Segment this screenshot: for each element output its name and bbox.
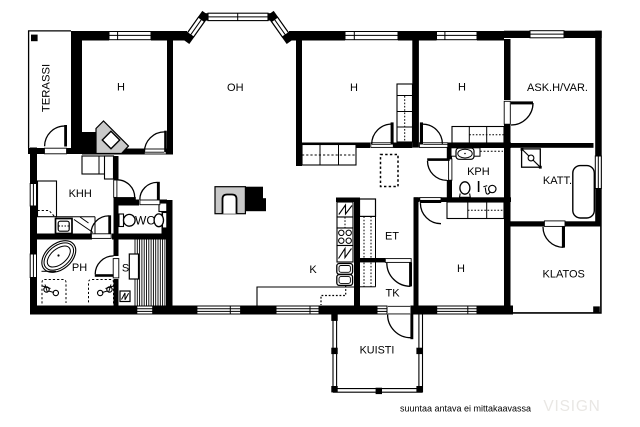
svg-text:KLATOS: KLATOS	[543, 269, 585, 281]
svg-text:KATT.: KATT.	[543, 175, 572, 187]
svg-text:VISIGN: VISIGN	[543, 398, 600, 415]
svg-text:ASK.H/VAR.: ASK.H/VAR.	[527, 82, 588, 94]
svg-text:K: K	[309, 264, 317, 276]
svg-text:TK: TK	[385, 287, 400, 299]
svg-text:ET: ET	[385, 231, 399, 243]
svg-text:H: H	[350, 82, 358, 94]
svg-text:OH: OH	[227, 82, 244, 94]
svg-text:WC: WC	[135, 214, 155, 228]
svg-text:H: H	[458, 82, 466, 94]
svg-text:suuntaa antava ei mittakaavass: suuntaa antava ei mittakaavassa	[400, 404, 531, 414]
svg-text:H: H	[457, 263, 465, 275]
svg-text:KUISTI: KUISTI	[360, 345, 395, 357]
svg-text:TERASSI: TERASSI	[41, 64, 53, 112]
svg-text:KPH: KPH	[467, 166, 490, 178]
svg-text:PH: PH	[72, 262, 87, 274]
svg-text:H: H	[117, 82, 125, 94]
svg-text:KHH: KHH	[69, 188, 92, 200]
svg-text:S: S	[122, 263, 129, 275]
